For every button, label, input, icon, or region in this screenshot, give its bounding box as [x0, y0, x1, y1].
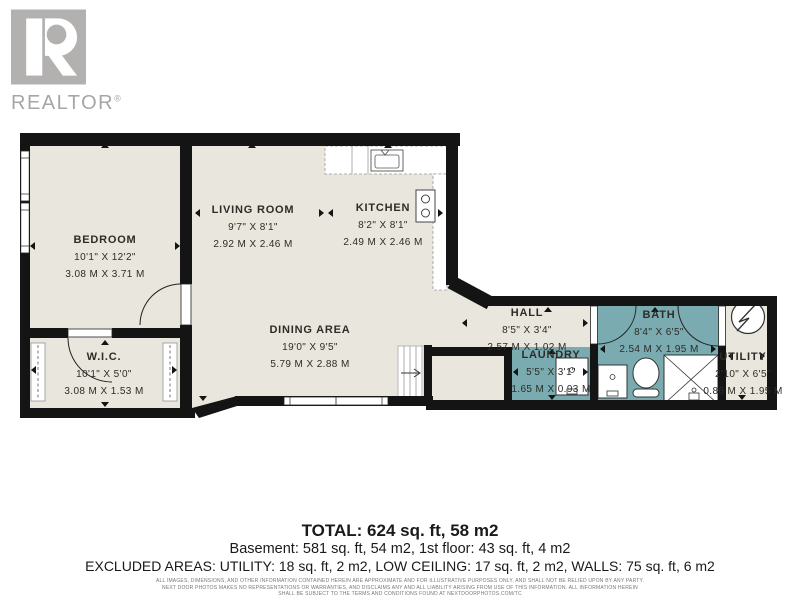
area-summary: TOTAL: 624 sq. ft, 58 m2 Basement: 581 s… [0, 521, 800, 598]
floor-plan-drawing [0, 0, 800, 600]
kitchen-name: KITCHEN [313, 200, 453, 217]
living-room-imperial-dims: 9'7" X 8'1" [173, 219, 333, 236]
room-label-bedroom: BEDROOM 10'1" X 12'2" 3.08 M X 3.71 M [25, 232, 185, 283]
kitchen-metric-dims: 2.49 M X 2.46 M [313, 234, 453, 251]
bedroom-name: BEDROOM [25, 232, 185, 249]
laundry-metric-dims: 1.65 M X 0.93 M [501, 381, 601, 398]
disclaimer-line-3: SHALL BE SUBJECT TO THE TERMS AND CONDIT… [0, 591, 800, 598]
bedroom-door [181, 284, 191, 325]
dining-area-imperial-dims: 19'0" X 9'5" [230, 339, 390, 356]
dining-area-metric-dims: 5.79 M X 2.88 M [230, 356, 390, 373]
wic-door [68, 329, 112, 337]
room-label-living-room: LIVING ROOM 9'7" X 8'1" 2.92 M X 2.46 M [173, 202, 333, 253]
wic-metric-dims: 3.08 M X 1.53 M [24, 383, 184, 400]
wic-imperial-dims: 10'1" X 5'0" [24, 366, 184, 383]
bath-name: BATH [599, 307, 719, 324]
laundry-imperial-dims: 5'5" X 3'1" [501, 364, 601, 381]
hall-name: HALL [467, 305, 587, 322]
room-label-laundry: LAUNDRY 5'5" X 3'1" 1.65 M X 0.93 M [501, 347, 601, 398]
living-room-metric-dims: 2.92 M X 2.46 M [173, 236, 333, 253]
bath-vanity-icon [598, 365, 627, 398]
disclaimer: ALL IMAGES, DIMENSIONS, AND OTHER INFORM… [0, 578, 800, 598]
toilet-icon [633, 358, 659, 397]
hall-imperial-dims: 8'5" X 3'4" [467, 322, 587, 339]
room-label-dining-area: DINING AREA 19'0" X 9'5" 5.79 M X 2.88 M [230, 322, 390, 373]
total-area-text: TOTAL: 624 sq. ft, 58 m2 [0, 521, 800, 540]
floor-plan-page: REALTOR® [0, 0, 800, 600]
bath-door [591, 306, 598, 344]
kitchen-imperial-dims: 8'2" X 8'1" [313, 217, 453, 234]
living-room-name: LIVING ROOM [173, 202, 333, 219]
room-label-kitchen: KITCHEN 8'2" X 8'1" 2.49 M X 2.46 M [313, 200, 453, 251]
floor-areas-text: Basement: 581 sq. ft, 54 m2, 1st floor: … [0, 540, 800, 558]
utility-metric-dims: 0.86 M X 1.95 M [703, 383, 783, 400]
room-label-utility: UTILITY 2'10" X 6'5" 0.86 M X 1.95 M [703, 349, 783, 400]
stairs [398, 346, 424, 400]
laundry-name: LAUNDRY [501, 347, 601, 364]
bedroom-imperial-dims: 10'1" X 12'2" [25, 249, 185, 266]
bedroom-metric-dims: 3.08 M X 3.71 M [25, 266, 185, 283]
excluded-areas-text: EXCLUDED AREAS: UTILITY: 18 sq. ft, 2 m2… [0, 558, 800, 575]
utility-door [719, 306, 726, 346]
bath-metric-dims: 2.54 M X 1.95 M [599, 341, 719, 358]
dining-area-name: DINING AREA [230, 322, 390, 339]
utility-imperial-dims: 2'10" X 6'5" [703, 366, 783, 383]
wic-name: W.I.C. [24, 349, 184, 366]
bath-imperial-dims: 8'4" X 6'5" [599, 324, 719, 341]
kitchen-sink-icon [371, 150, 403, 171]
room-label-wic: W.I.C. 10'1" X 5'0" 3.08 M X 1.53 M [24, 349, 184, 400]
utility-name: UTILITY [703, 349, 783, 366]
room-label-bath: BATH 8'4" X 6'5" 2.54 M X 1.95 M [599, 307, 719, 358]
